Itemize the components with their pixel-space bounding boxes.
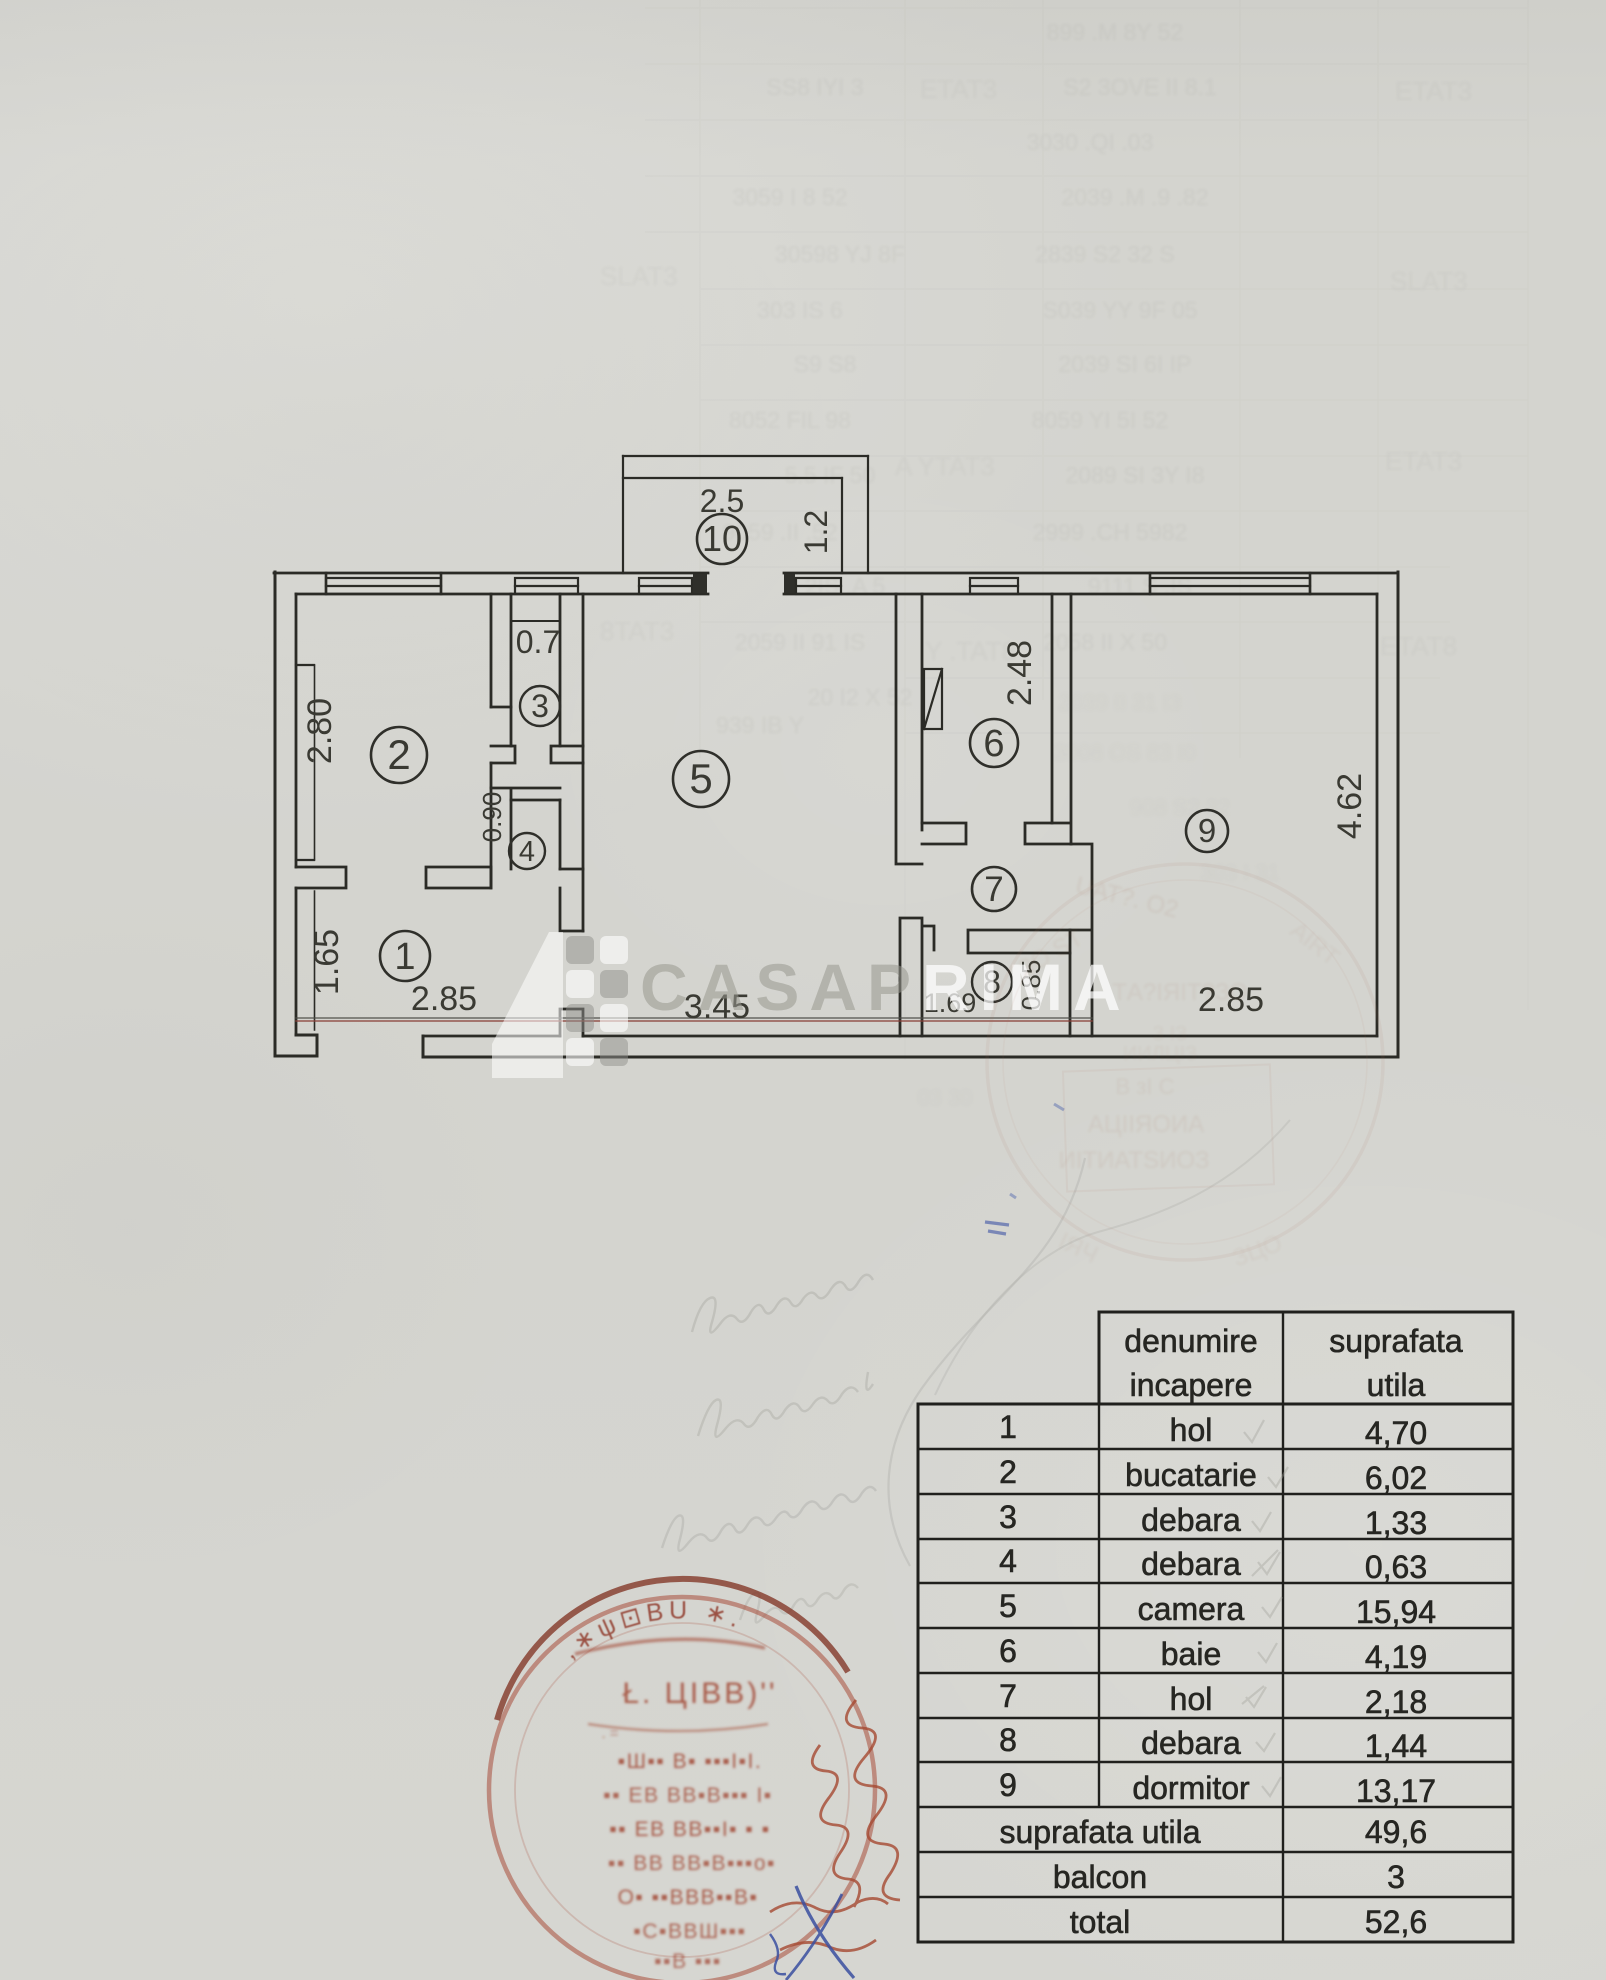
svg-text:ETAT8: ETAT8 xyxy=(1380,631,1457,661)
svg-text:1.65: 1.65 xyxy=(308,929,346,995)
svg-text:5.5 IF 50: 5.5 IF 50 xyxy=(785,462,876,488)
svg-text:1.2: 1.2 xyxy=(798,510,834,554)
svg-text:9: 9 xyxy=(1198,812,1216,849)
svg-text:3059 I 8 52: 3059 I 8 52 xyxy=(732,184,847,210)
svg-text:suprafata: suprafata xyxy=(1329,1323,1463,1359)
svg-text:9: 9 xyxy=(999,1767,1017,1803)
svg-text:2,18: 2,18 xyxy=(1365,1684,1427,1720)
svg-text:1,33: 1,33 xyxy=(1365,1505,1427,1541)
svg-text:8TAT3: 8TAT3 xyxy=(600,616,674,646)
svg-text:SLAT3: SLAT3 xyxy=(600,261,678,291)
svg-text:hol: hol xyxy=(1170,1681,1213,1717)
svg-text:899 .M 8Y 52: 899 .M 8Y 52 xyxy=(1047,19,1183,45)
svg-text:2.80: 2.80 xyxy=(301,698,339,764)
svg-text:15,94: 15,94 xyxy=(1356,1594,1436,1630)
svg-text:3030 .QI .03: 3030 .QI .03 xyxy=(1027,129,1154,155)
svg-text:UAT?. O2: UAT?. O2 xyxy=(1073,872,1181,924)
svg-text:8052 FIL 98: 8052 FIL 98 xyxy=(729,407,851,433)
svg-text:13,17: 13,17 xyxy=(1356,1773,1436,1809)
svg-text:▪Ш▪▪ В▪ ▪▪▪І▪І.: ▪Ш▪▪ В▪ ▪▪▪І▪І. xyxy=(618,1750,762,1773)
svg-text:О▪ ▪▪ВВВ▪▪В▪: О▪ ▪▪ВВВ▪▪В▪ xyxy=(618,1886,759,1909)
svg-text:hol: hol xyxy=(1170,1412,1213,1448)
svg-text:2.5: 2.5 xyxy=(700,483,744,519)
svg-text:utila: utila xyxy=(1367,1367,1426,1403)
svg-text:3: 3 xyxy=(999,1499,1017,1535)
svg-text:▪С▪ВВШ▪▪▪: ▪С▪ВВШ▪▪▪ xyxy=(633,1920,746,1943)
svg-text:CASAP: CASAP xyxy=(640,950,921,1024)
svg-text:5: 5 xyxy=(689,755,712,802)
svg-text:49,6: 49,6 xyxy=(1365,1814,1427,1850)
svg-text:TА?ІЯІТ?ЗО: TА?ІЯІТ?ЗО xyxy=(1112,979,1248,1006)
svg-text:S2 3OVE II 8.1: S2 3OVE II 8.1 xyxy=(1063,74,1216,100)
svg-text:4,19: 4,19 xyxy=(1365,1639,1427,1675)
svg-text:8: 8 xyxy=(999,1722,1017,1758)
svg-text:3: 3 xyxy=(531,688,549,724)
svg-text:. =: . = xyxy=(601,1725,618,1742)
svg-text:▪▪ ЕВ ВВ▪▪І▪ ▪ ▪: ▪▪ ЕВ ВВ▪▪І▪ ▪ ▪ xyxy=(609,1818,770,1841)
svg-text:▪▪ ВВ ВВ▪В▪▪▪о▪: ▪▪ ВВ ВВ▪В▪▪▪о▪ xyxy=(608,1852,776,1875)
svg-text:ИІТИАТЅИОЗ: ИІТИАТЅИОЗ xyxy=(1058,1147,1209,1174)
svg-text:2.48: 2.48 xyxy=(1001,640,1039,706)
svg-text:debara: debara xyxy=(1141,1502,1241,1538)
svg-text:939 IB Y: 939 IB Y xyxy=(716,712,804,738)
svg-text:2: 2 xyxy=(999,1454,1017,1490)
svg-text:▪▪ ЕВ ВВ▪В▪▪▪ І▪: ▪▪ ЕВ ВВ▪В▪▪▪ І▪ xyxy=(603,1784,772,1807)
svg-text:0.90: 0.90 xyxy=(477,792,507,843)
svg-text:SS8 IYI 3: SS8 IYI 3 xyxy=(766,74,863,100)
svg-text:2058 II X 50: 2058 II X 50 xyxy=(1043,629,1167,655)
svg-text:8059 YI 5I 52: 8059 YI 5I 52 xyxy=(1032,407,1168,433)
svg-text:1: 1 xyxy=(394,936,415,978)
svg-text:В зІ С: В зІ С xyxy=(1116,1074,1175,1099)
svg-text:5: 5 xyxy=(999,1588,1017,1624)
svg-text:suprafata utila: suprafata utila xyxy=(999,1814,1200,1850)
svg-text:1,44: 1,44 xyxy=(1365,1728,1427,1764)
svg-text:6: 6 xyxy=(999,1633,1017,1669)
svg-text:4.62: 4.62 xyxy=(1331,773,1369,839)
svg-text:dormitor: dormitor xyxy=(1132,1770,1250,1806)
svg-text:10: 10 xyxy=(702,518,742,559)
svg-text:denumire: denumire xyxy=(1124,1323,1257,1359)
svg-text:ETAT3: ETAT3 xyxy=(920,74,997,104)
svg-text:bucatarie: bucatarie xyxy=(1125,1457,1257,1493)
svg-text:52,6: 52,6 xyxy=(1365,1904,1427,1940)
svg-text:2039 II 31 I3: 2039 II 31 I3 xyxy=(1059,690,1181,715)
svg-text:2839 S2 32 S: 2839 S2 32 S xyxy=(1035,241,1174,267)
svg-text:303 IS 6: 303 IS 6 xyxy=(757,297,843,323)
svg-text:3 ІЗ: 3 ІЗ xyxy=(1153,1023,1187,1045)
svg-text:debara: debara xyxy=(1141,1725,1241,1761)
svg-text:2: 2 xyxy=(387,731,410,778)
svg-text:АЦІІЯОИА: АЦІІЯОИА xyxy=(1088,1111,1204,1138)
svg-text:2039 SI 6I IP: 2039 SI 6I IP xyxy=(1059,351,1192,377)
svg-text:4,70: 4,70 xyxy=(1365,1415,1427,1451)
svg-text:camera: camera xyxy=(1138,1591,1245,1627)
svg-text:3008 OS 83 I0: 3008 OS 83 I0 xyxy=(1054,740,1196,765)
svg-text:ETAT3: ETAT3 xyxy=(1385,446,1462,476)
svg-text:1: 1 xyxy=(999,1409,1017,1445)
svg-text:3: 3 xyxy=(1387,1859,1405,1895)
svg-text:03 30: 03 30 xyxy=(917,1085,972,1110)
svg-text:▪▪В ▪▪▪: ▪▪В ▪▪▪ xyxy=(654,1950,722,1973)
svg-text:2.85: 2.85 xyxy=(411,980,477,1018)
svg-text:2999 .CH 5982: 2999 .CH 5982 xyxy=(1033,519,1188,545)
svg-text:A YTAT3: A YTAT3 xyxy=(895,451,995,481)
svg-text:AIRT: AIRT xyxy=(1285,917,1345,972)
svg-text:4: 4 xyxy=(519,836,535,868)
svg-text:2089 SI 3Y I8: 2089 SI 3Y I8 xyxy=(1066,462,1205,488)
svg-text:ИИЛЦІЗ: ИИЛЦІЗ xyxy=(1123,1043,1197,1065)
svg-text:debara: debara xyxy=(1141,1546,1241,1582)
svg-text:S039 YY 9F 05: S039 YY 9F 05 xyxy=(1042,297,1197,323)
svg-text:0.7: 0.7 xyxy=(516,624,560,660)
svg-text:7: 7 xyxy=(999,1678,1017,1714)
svg-text:30598 YJ 8F: 30598 YJ 8F xyxy=(775,241,905,267)
svg-text:4: 4 xyxy=(999,1543,1017,1579)
svg-text:7: 7 xyxy=(984,870,1003,909)
svg-text:2039 .M .9 .82: 2039 .M .9 .82 xyxy=(1061,184,1208,210)
svg-text:Ł. ЦІВВ)'': Ł. ЦІВВ)'' xyxy=(622,1677,777,1710)
svg-text:6,02: 6,02 xyxy=(1365,1460,1427,1496)
svg-text:2059 II 91 IS: 2059 II 91 IS xyxy=(735,629,865,655)
svg-text:total: total xyxy=(1070,1904,1130,1940)
svg-text:baie: baie xyxy=(1161,1636,1222,1672)
svg-text:ETAT3: ETAT3 xyxy=(1395,76,1472,106)
svg-text:balcon: balcon xyxy=(1053,1859,1147,1895)
svg-text:0,63: 0,63 xyxy=(1365,1549,1427,1585)
svg-text:6: 6 xyxy=(983,723,1004,765)
svg-text:S9 S8: S9 S8 xyxy=(794,351,857,377)
svg-text:incapere: incapere xyxy=(1130,1367,1253,1403)
svg-text:SLAT3: SLAT3 xyxy=(1390,266,1468,296)
